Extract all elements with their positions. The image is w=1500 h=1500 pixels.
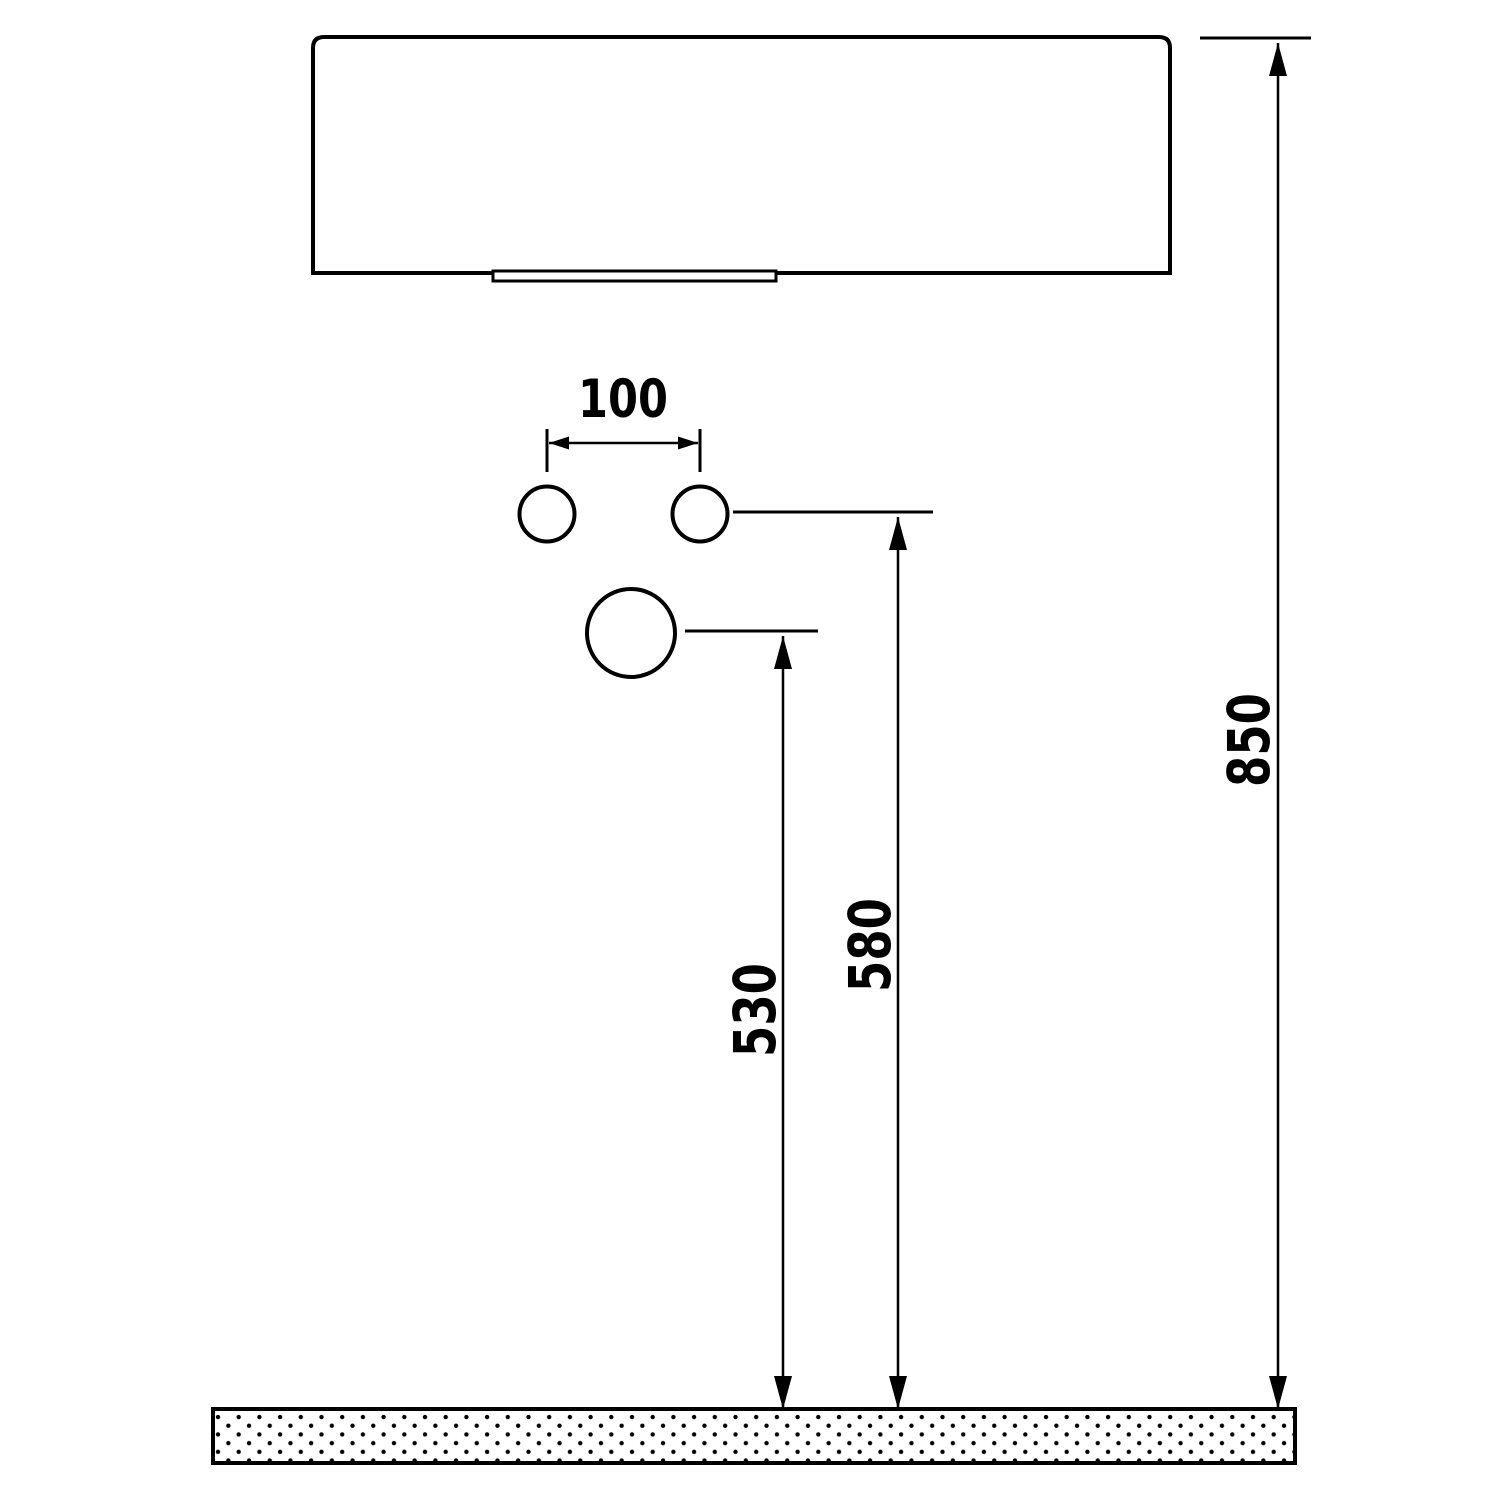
dim-drain-to-floor: 530 — [721, 636, 792, 1409]
dim-faucet-holes-to-floor: 580 — [836, 517, 907, 1409]
dim-850-label: 850 — [1215, 693, 1283, 787]
arrow-down-icon — [774, 1376, 792, 1409]
arrow-up-icon — [774, 636, 792, 669]
floor-strip — [213, 1409, 1295, 1463]
dim-basin-top-to-floor: 850 — [1215, 43, 1287, 1409]
faucet-hole-right — [673, 487, 728, 542]
basin-lip — [493, 271, 776, 281]
basin-outline — [313, 37, 1170, 273]
floor-group — [213, 1409, 1295, 1463]
drawing-canvas: 100 530 580 850 — [0, 0, 1500, 1500]
dim-530-label: 530 — [721, 963, 789, 1057]
arrow-up-icon — [889, 517, 907, 550]
arrow-down-icon — [889, 1376, 907, 1409]
faucet-hole-left — [520, 487, 575, 542]
basin-group — [313, 37, 1170, 281]
washbasin-installation-drawing: 100 530 580 850 — [0, 0, 1500, 1500]
arrow-left-icon — [549, 437, 569, 450]
faucet-holes-group — [520, 487, 728, 542]
dim-100-label: 100 — [578, 369, 668, 430]
dim-faucet-hole-spacing: 100 — [547, 369, 700, 472]
dim-580-label: 580 — [836, 898, 904, 992]
drain-hole — [587, 589, 675, 677]
arrow-down-icon — [1269, 1376, 1287, 1409]
arrow-up-icon — [1269, 43, 1287, 76]
arrow-right-icon — [678, 437, 698, 450]
